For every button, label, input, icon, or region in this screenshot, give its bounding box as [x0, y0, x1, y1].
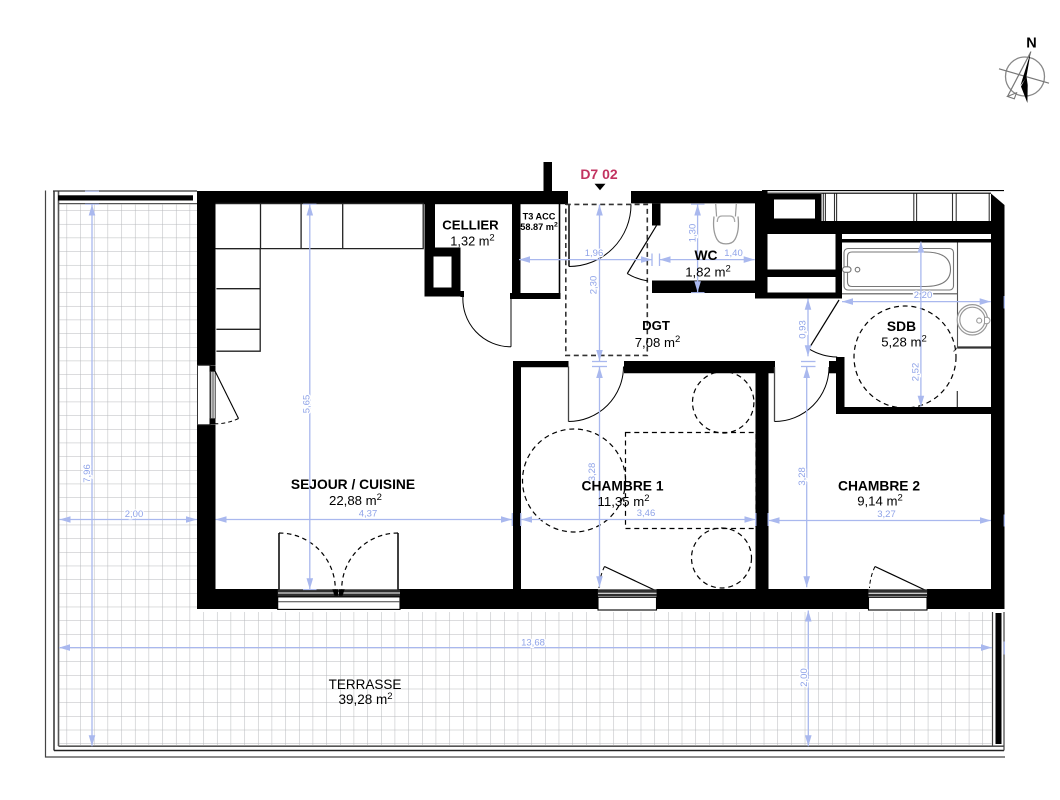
svg-text:11,35 m2: 11,35 m2 [598, 493, 650, 509]
svg-text:1,82 m2: 1,82 m2 [685, 264, 731, 280]
svg-text:3,27: 3,27 [877, 509, 896, 520]
svg-text:4,37: 4,37 [359, 509, 378, 520]
svg-text:3,46: 3,46 [637, 508, 656, 519]
svg-text:1,40: 1,40 [724, 248, 743, 259]
svg-text:1,30: 1,30 [687, 224, 698, 243]
svg-text:TERRASSE: TERRASSE [329, 677, 402, 692]
svg-text:CHAMBRE 2: CHAMBRE 2 [838, 479, 920, 494]
svg-text:7,08 m2: 7,08 m2 [635, 334, 681, 350]
svg-text:DGT: DGT [642, 318, 670, 333]
svg-text:7,96: 7,96 [82, 464, 93, 483]
svg-text:D7 02: D7 02 [580, 166, 618, 182]
svg-text:58.87 m2: 58.87 m2 [520, 222, 558, 233]
svg-text:39,28 m2: 39,28 m2 [338, 691, 392, 707]
svg-text:CELLIER: CELLIER [442, 218, 499, 233]
svg-text:22,88 m2: 22,88 m2 [329, 492, 382, 508]
svg-text:9,14 m2: 9,14 m2 [857, 493, 903, 509]
svg-text:T3 ACC: T3 ACC [523, 212, 556, 222]
svg-text:1,96: 1,96 [585, 248, 604, 259]
svg-text:2,20: 2,20 [914, 290, 933, 301]
svg-text:5,65: 5,65 [302, 395, 313, 414]
svg-text:WC: WC [695, 248, 718, 263]
svg-text:2,30: 2,30 [589, 276, 600, 295]
svg-text:SEJOUR / CUISINE: SEJOUR / CUISINE [291, 477, 415, 492]
svg-text:SDB: SDB [887, 319, 916, 334]
svg-text:3,28: 3,28 [797, 467, 808, 486]
svg-text:1,32 m2: 1,32 m2 [450, 233, 494, 249]
svg-text:2,00: 2,00 [125, 509, 144, 520]
svg-text:N: N [1026, 36, 1036, 52]
svg-text:2,00: 2,00 [799, 668, 810, 687]
svg-text:0,93: 0,93 [798, 320, 809, 339]
svg-text:5,28 m2: 5,28 m2 [881, 334, 927, 350]
svg-text:2,52: 2,52 [910, 363, 921, 382]
svg-text:13,68: 13,68 [521, 637, 545, 648]
svg-text:CHAMBRE 1: CHAMBRE 1 [581, 479, 663, 494]
